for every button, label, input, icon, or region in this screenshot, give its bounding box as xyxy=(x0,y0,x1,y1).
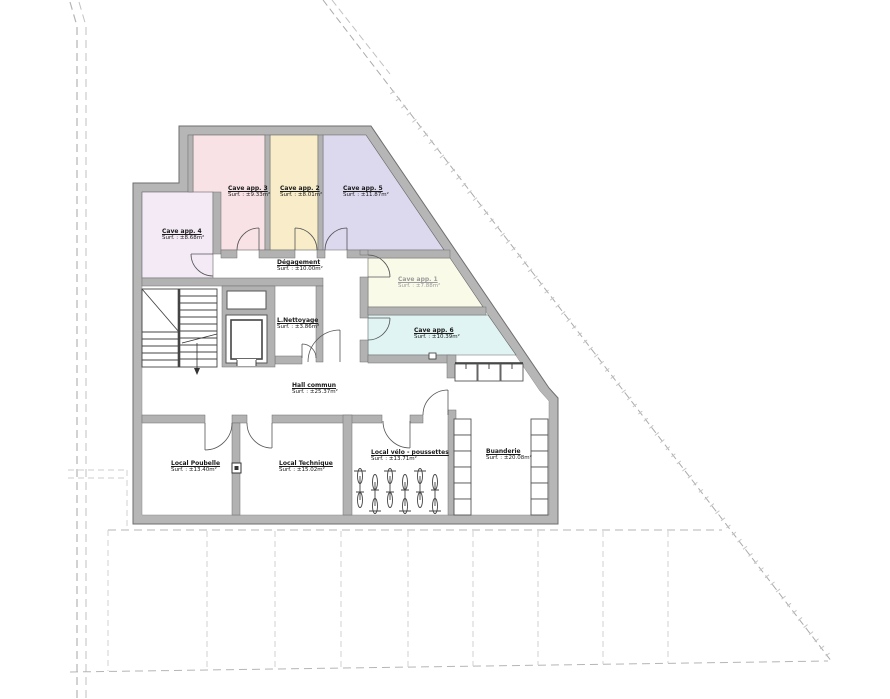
room-label-cave-app-3: Cave app. 3 Surf. : ±9.33m² xyxy=(228,185,270,199)
room-name: Cave app. 5 xyxy=(343,185,389,192)
room-name: Cave app. 4 xyxy=(162,228,204,235)
duct-shaft xyxy=(227,291,266,309)
room-name: Dégagement xyxy=(277,259,323,266)
room-name: Cave app. 3 xyxy=(228,185,270,192)
room-area: Surf. : ±10.39m² xyxy=(414,334,460,341)
room-label-cave-app-1: Cave app. 1 Surf. : ±7.88m² xyxy=(398,276,440,290)
room-label-local-technique: Local Technique Surf. : ±15.02m² xyxy=(279,460,333,474)
room-name: Cave app. 6 xyxy=(414,327,460,334)
room-name: Buanderie xyxy=(486,448,532,455)
wall-fixture-icon xyxy=(429,353,436,359)
floor-plan-drawing xyxy=(0,0,890,699)
room-area: Surf. : ±11.87m² xyxy=(343,192,389,199)
room-name: Local Technique xyxy=(279,460,333,467)
room-area: Surf. : ±25.37m² xyxy=(292,389,338,396)
room-label-hall-commun: Hall commun Surf. : ±25.37m² xyxy=(292,382,338,396)
room-area: Surf. : ±20.08m² xyxy=(486,455,532,462)
room-area: Surf. : ±10.00m² xyxy=(277,266,323,273)
room-area: Surf. : ±15.02m² xyxy=(279,467,333,474)
room-name: Hall commun xyxy=(292,382,338,389)
elevator xyxy=(222,286,275,367)
room-label-degagement: Dégagement Surf. : ±10.00m² xyxy=(277,259,323,273)
room-area: Surf. : ±13.40m² xyxy=(171,467,220,474)
room-label-cave-app-4: Cave app. 4 Surf. : ±8.68m² xyxy=(162,228,204,242)
floor-plan-canvas: Cave app. 3 Surf. : ±9.33m² Cave app. 2 … xyxy=(0,0,890,699)
room-area: Surf. : ±13.71m² xyxy=(371,456,449,463)
room-area: Surf. : ±3.86m² xyxy=(277,324,319,331)
room-name: Cave app. 1 xyxy=(398,276,440,283)
room-label-local-poubelle: Local Poubelle Surf. : ±13.40m² xyxy=(171,460,220,474)
room-name: Local vélo - poussettes xyxy=(371,449,449,456)
staircase xyxy=(142,289,217,375)
room-area: Surf. : ±7.88m² xyxy=(398,283,440,290)
room-label-cave-app-6: Cave app. 6 Surf. : ±10.39m² xyxy=(414,327,460,341)
room-label-cave-app-2: Cave app. 2 Surf. : ±8.01m² xyxy=(280,185,322,199)
room-name: Local Poubelle xyxy=(171,460,220,467)
room-area: Surf. : ±8.01m² xyxy=(280,192,322,199)
room-label-cave-app-5: Cave app. 5 Surf. : ±11.87m² xyxy=(343,185,389,199)
washing-machine-row xyxy=(455,363,523,381)
room-name: L.Nettoyage xyxy=(277,317,319,324)
room-area: Surf. : ±8.68m² xyxy=(162,235,204,242)
room-area: Surf. : ±9.33m² xyxy=(228,192,270,199)
room-label-buanderie: Buanderie Surf. : ±20.08m² xyxy=(486,448,532,462)
room-label-l-nettoyage: L.Nettoyage Surf. : ±3.86m² xyxy=(277,317,319,331)
room-label-local-velo: Local vélo - poussettes Surf. : ±13.71m² xyxy=(371,449,449,463)
room-name: Cave app. 2 xyxy=(280,185,322,192)
elevator-car xyxy=(231,320,262,359)
